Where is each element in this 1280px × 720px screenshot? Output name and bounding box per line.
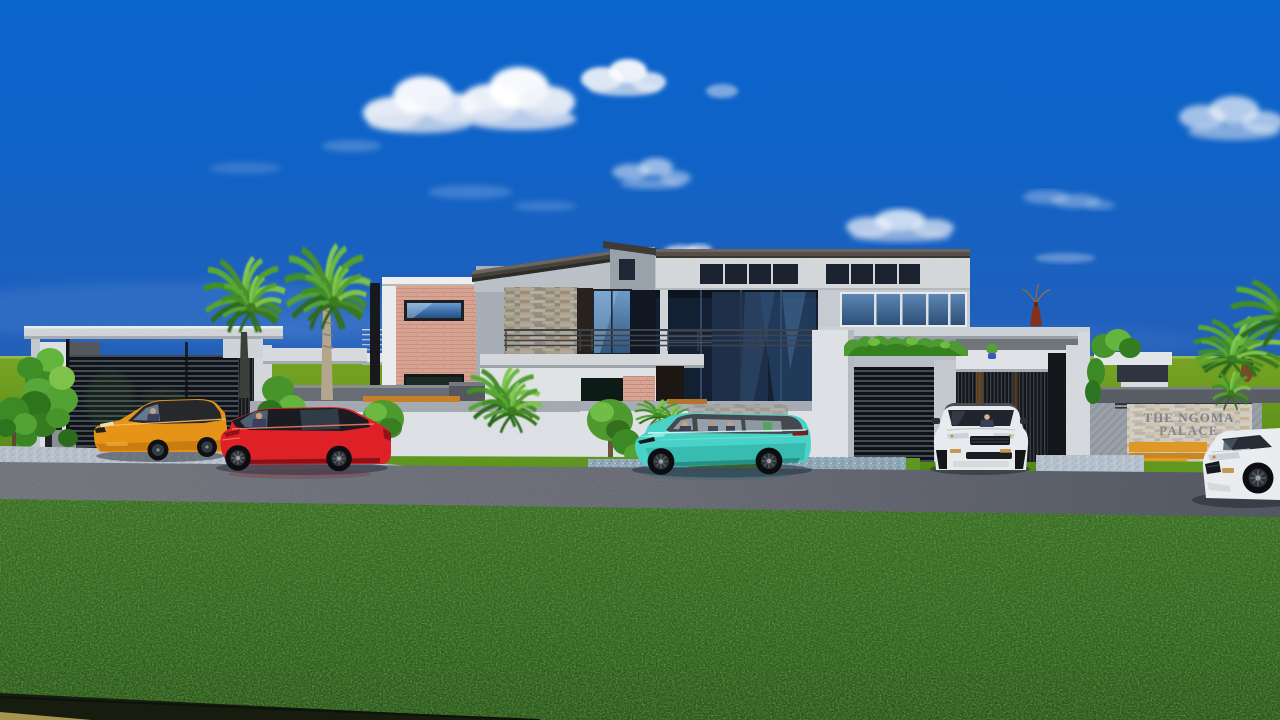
svg-text:THE NGOMA: THE NGOMA <box>1144 410 1235 425</box>
svg-text:PALACE: PALACE <box>1159 424 1218 438</box>
